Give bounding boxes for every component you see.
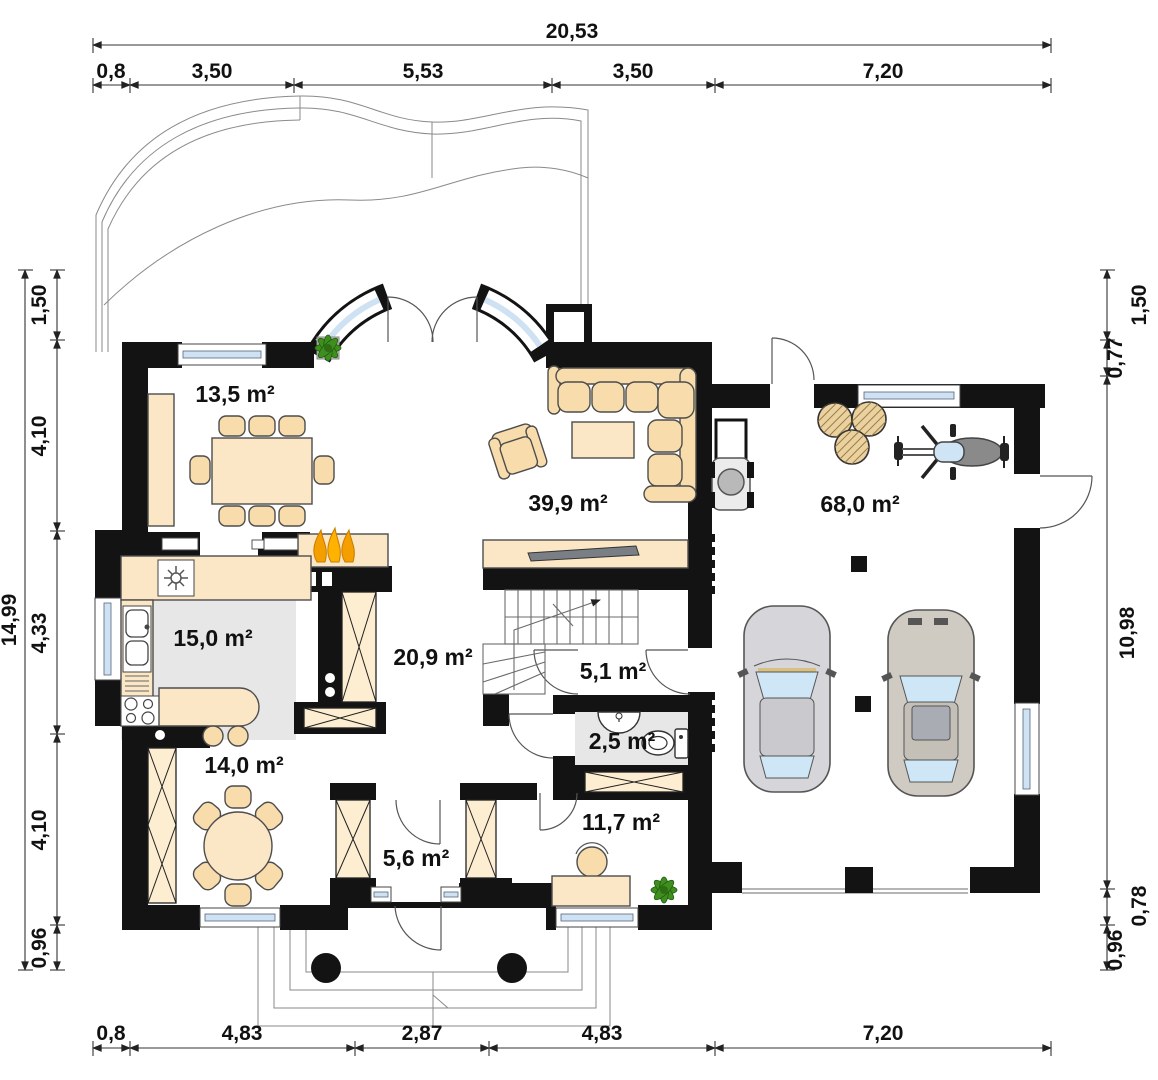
hall-corridor-door [534,650,578,694]
motorcycle-icon [894,424,1009,480]
garage-back-door [772,338,814,384]
room-label-dining: 13,5 m² [195,381,275,407]
garage-side-window [1015,703,1039,795]
plant-icon [315,335,341,361]
dining-furniture [148,394,334,526]
vestibule-post [336,800,370,878]
dim-label: 0,77 [1104,338,1127,379]
car-left-icon [737,606,837,792]
kitchen-counter-top [121,556,311,600]
room-window [200,908,280,927]
dim-left-segments: 1,50 4,10 4,33 4,10 0,96 [28,270,65,970]
garage-contents [708,402,1009,796]
front-door-sidelight [441,887,461,902]
porch-column [311,953,341,983]
lawn-mower-icon [708,420,754,510]
floor-plan-page: 13,5 m² 39,9 m² 68,0 m² 15,0 m² 20,9 m² … [0,0,1158,1080]
dim-top-segments: 0,8 3,50 5,53 3,50 7,20 [93,60,1051,93]
dining-table [212,438,312,504]
room-label-garage: 68,0 m² [820,491,900,517]
dim-label: 4,83 [222,1022,263,1045]
room-label-wc: 2,5 m² [589,728,656,754]
dim-label: 2,87 [402,1022,443,1045]
dim-label: 7,20 [863,60,904,83]
stove-icon [121,696,159,726]
floor-plan-drawing: 13,5 m² 39,9 m² 68,0 m² 15,0 m² 20,9 m² … [0,0,1158,1080]
garage-column [851,556,867,572]
desk [552,876,630,906]
dim-top-total: 20,53 [546,20,599,43]
dining-window [178,344,266,365]
porch-column [497,953,527,983]
dim-label: 10,98 [1116,606,1139,659]
desk-chair [577,847,607,877]
wc-door [509,714,553,758]
bar-stool [228,726,248,746]
coffee-table [572,422,634,458]
plant-icon [651,877,677,903]
room-label-corridor: 5,1 m² [580,658,647,684]
dim-right-segments: 1,50 0,77 10,98 0,78 0,96 [1100,270,1151,970]
garage-side-door [1040,476,1092,528]
armchair [486,421,548,480]
vestibule-hall-door [396,800,440,844]
dim-label: 3,50 [613,60,654,83]
kitchen-window [95,598,121,680]
chimney-shaft [304,708,376,728]
garage-column [855,696,871,712]
round-table [204,812,272,880]
living-furniture [483,366,696,568]
front-door [395,906,441,950]
car-right-icon [881,610,981,796]
front-door-sidelight [371,887,391,902]
dim-label: 7,20 [863,1022,904,1045]
room-label-living: 39,9 m² [528,490,608,516]
dim-label: 0,96 [28,928,51,969]
room-label-office: 11,7 m² [582,809,660,835]
dim-label: 0,96 [1104,930,1127,971]
bar-counter [159,688,259,726]
dim-bottom-segments: 0,8 4,83 2,87 4,83 7,20 [93,1022,1051,1056]
wc-shaft [585,772,683,792]
dining-table-set [190,416,334,526]
dim-label: 1,50 [1128,285,1151,326]
tv-bench [483,540,688,568]
bar-stool [203,726,223,746]
barrel-icon [818,402,886,464]
dim-label: 0,78 [1128,885,1151,926]
dim-label: 4,10 [28,810,51,851]
dim-label: 3,50 [192,60,233,83]
vestibule-post [466,800,496,878]
corridor-garage-door [646,650,690,694]
office-furniture [552,843,630,906]
dim-label: 4,33 [28,613,51,654]
dim-label: 4,10 [28,416,51,457]
flame-icon [314,528,355,562]
room-label-kitchen: 15,0 m² [173,625,253,651]
sideboard [148,394,174,526]
room-label-vestibule: 5,6 m² [383,845,450,871]
office-window [556,908,638,927]
room-furniture [190,786,286,906]
wall-shaft [148,748,176,903]
chimney-shaft [342,592,376,702]
dim-label: 0,8 [96,1022,126,1045]
sink-icon [123,606,151,672]
room-label-room: 14,0 m² [204,752,284,778]
dim-label: 0,8 [96,60,126,83]
bay-window-right [485,300,540,346]
room-label-hall: 20,9 m² [393,644,473,670]
cooker-hood-icon [158,560,194,596]
dim-label: 1,50 [28,285,51,326]
dim-label: 4,83 [582,1022,623,1045]
dim-left-total: 14,99 [0,594,21,647]
dim-label: 5,53 [403,60,444,83]
